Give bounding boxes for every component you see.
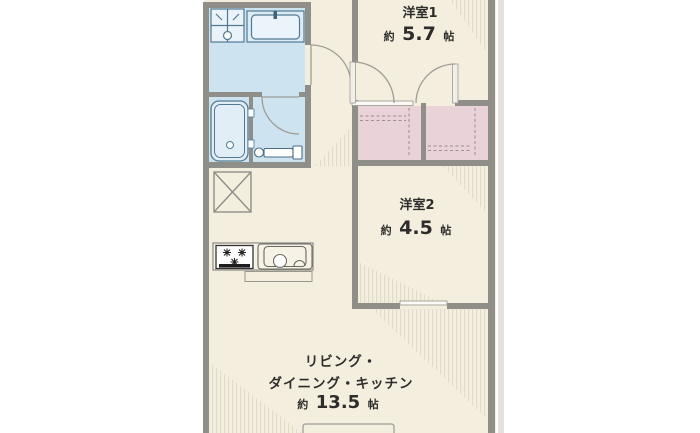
closet-left-sliding-door	[352, 101, 413, 106]
ldk-label-line1: リビング・	[305, 353, 378, 370]
western-room-2-sliding-door	[400, 301, 447, 305]
western-room-2-label: 洋室2	[399, 197, 434, 213]
floor-plan-page: 洋室1 約 5.7 帖 洋室2 約 4.5 帖 リビング・ ダイニング・キッチン…	[0, 0, 700, 433]
western-room-1-label: 洋室1	[402, 5, 437, 21]
bathtub-icon	[211, 101, 248, 161]
kitchen-lower-cabinet	[245, 272, 312, 282]
ldk-label-line2: ダイニング・キッチン	[269, 375, 414, 392]
closet-left	[358, 106, 421, 160]
closet-right	[426, 106, 488, 160]
floor-plan-canvas: 洋室1 約 5.7 帖 洋室2 約 4.5 帖 リビング・ ダイニング・キッチン…	[0, 0, 700, 433]
washing-machine-icon	[211, 9, 244, 42]
stove-icon	[216, 246, 253, 269]
outer-edge-strip	[498, 0, 504, 433]
wash-basin-icon	[247, 11, 304, 42]
